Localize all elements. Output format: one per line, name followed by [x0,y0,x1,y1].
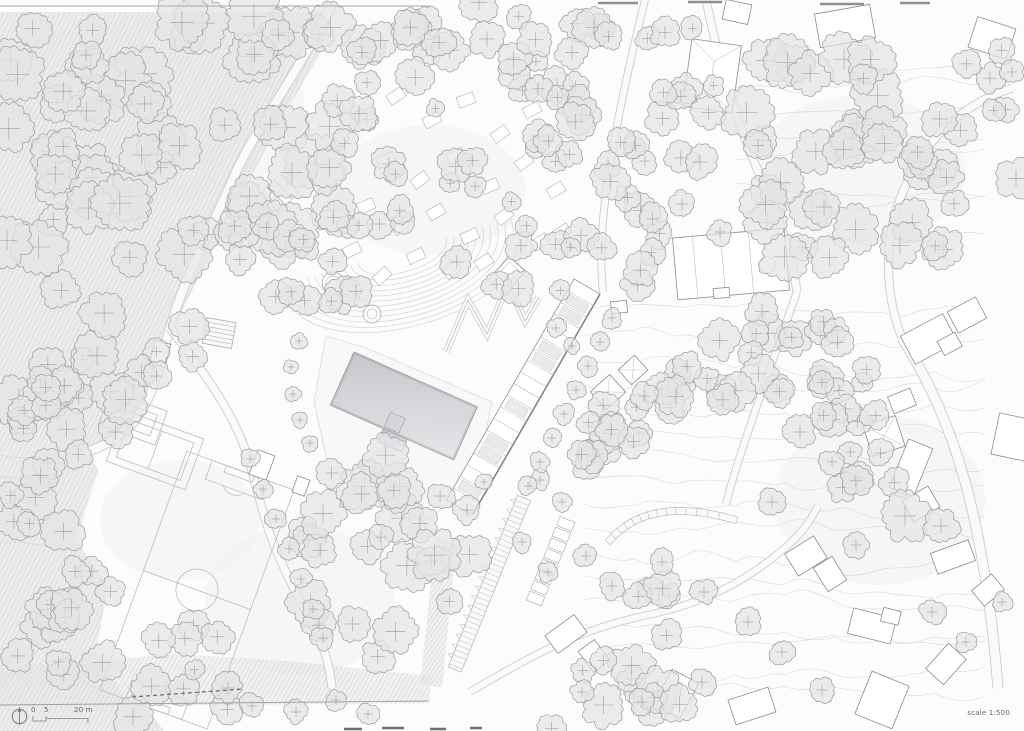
scalebar-label-0: 0 [31,707,36,714]
scalebar-label-5: 5 [44,707,49,714]
scale-note: scale 1:500 [940,710,1010,717]
site-plan-sheet: 0 5 20 m scale 1:500 [0,0,1024,731]
site-plan-canvas [0,0,1024,731]
scalebar-label-20m: 20 m [74,707,93,714]
